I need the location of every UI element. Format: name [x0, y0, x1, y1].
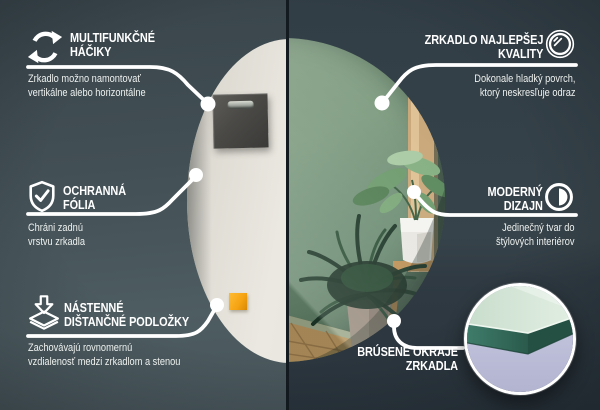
callout-design-desc: Jedinečný tvar do štýlových interiérov: [481, 221, 575, 249]
callout-design-title-line1: MODERNÝ: [488, 185, 543, 199]
rotate-arrows-icon: [26, 28, 64, 66]
callout-hooks-desc-line2: vertikálne alebo horizontálne: [28, 86, 146, 100]
callout-spacers: NÁSTENNÉ DIŠTANČNÉ PODLOŽKY: [64, 301, 213, 329]
callout-hooks-title-line1: MULTIFUNKČNÉ: [70, 31, 155, 45]
callout-spacers-desc: Zachovávajú rovnomernú vzdialenosť medzi…: [28, 341, 209, 369]
shield-check-icon: [27, 180, 57, 213]
callout-design-desc-line2: štýlových interiérov: [496, 235, 575, 249]
callout-film-desc-line2: vrstvu zrkadla: [28, 235, 85, 249]
callout-film-desc-line1: Chráni zadnú: [28, 221, 85, 235]
callout-spacers-title-line2: DIŠTANČNÉ PODLOŽKY: [64, 315, 189, 329]
callout-film: OCHRANNÁ FÓLIA: [63, 184, 138, 212]
callout-quality-title-line2: KVALITY: [424, 47, 543, 61]
glass-edge-photo: [464, 283, 576, 395]
split-divider-line: [286, 0, 289, 410]
callout-quality-desc: Dokonale hladký povrch, ktorý neskresľuj…: [455, 72, 575, 100]
half-circle-icon: [543, 181, 575, 213]
callout-quality-title-line1: ZRKADLO NAJLEPŠEJ: [424, 33, 543, 47]
callout-hooks-desc-line1: Zrkadlo možno namontovať: [28, 72, 146, 86]
callout-edges: BRÚSENÉ OKRAJE ZRKADLA: [338, 345, 458, 373]
callout-quality-desc-line1: Dokonale hladký povrch,: [474, 72, 575, 86]
callout-spacers-title-line1: NÁSTENNÉ: [64, 301, 189, 315]
callout-film-desc: Chráni zadnú vrstvu zrkadla: [28, 221, 96, 249]
callout-quality: ZRKADLO NAJLEPŠEJ KVALITY: [402, 33, 543, 61]
callout-hooks: MULTIFUNKČNÉ HÁČIKY: [70, 31, 171, 59]
callout-design-desc-line1: Jedinečný tvar do: [496, 221, 575, 235]
callout-spacers-desc-line2: vzdialenosť medzi zrkadlom a stenou: [28, 355, 180, 369]
callout-design-title-line2: DIZAJN: [488, 199, 543, 213]
callout-hooks-title-line2: HÁČIKY: [70, 45, 155, 59]
spacer-stack-icon: [27, 294, 61, 331]
mirror-circle-icon: [544, 28, 576, 60]
callout-edges-title-line1: BRÚSENÉ OKRAJE: [357, 345, 458, 359]
callout-hooks-desc: Zrkadlo možno namontovať vertikálne aleb…: [28, 72, 168, 100]
mirror-front-surface: [289, 38, 445, 362]
mirror-glass-sheen: [289, 38, 445, 362]
callout-film-title-line1: OCHRANNÁ: [63, 184, 126, 198]
infographic-canvas: MULTIFUNKČNÉ HÁČIKY Zrkadlo možno namont…: [0, 0, 600, 410]
callout-quality-desc-line2: ktorý neskresľuje odraz: [474, 86, 575, 100]
callout-design: MODERNÝ DIZAJN: [477, 185, 543, 213]
callout-spacers-desc-line1: Zachovávajú rovnomernú: [28, 341, 180, 355]
callout-film-title-line2: FÓLIA: [63, 198, 126, 212]
callout-edges-title-line2: ZRKADLA: [357, 359, 458, 373]
